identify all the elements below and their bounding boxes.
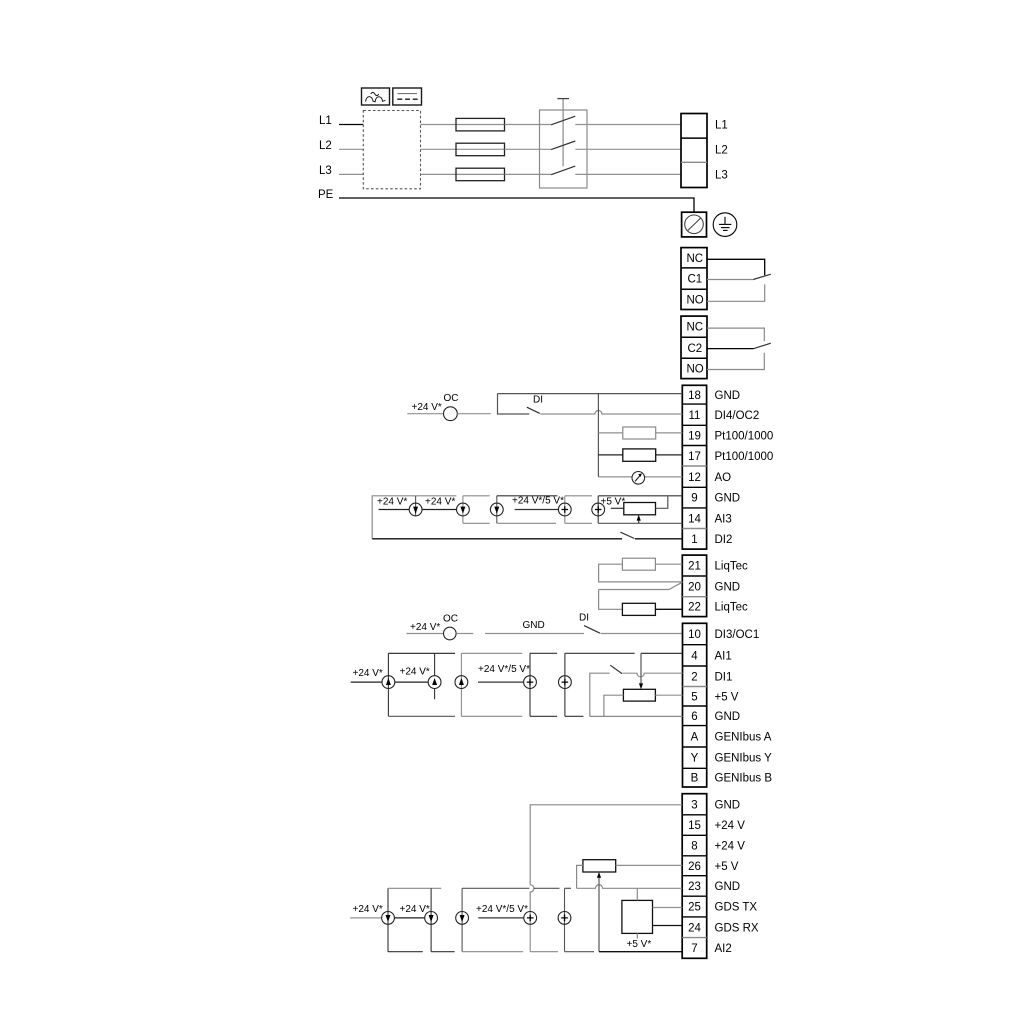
svg-text:GND: GND [715,493,741,505]
svg-text:+24 V*: +24 V* [353,668,383,679]
svg-text:+24 V*: +24 V* [410,622,440,633]
svg-text:21: 21 [688,561,701,573]
svg-text:20: 20 [688,581,701,593]
svg-text:NO: NO [687,295,704,307]
svg-text:GND: GND [715,581,741,593]
svg-text:C1: C1 [688,274,703,286]
svg-text:GDS RX: GDS RX [715,922,759,934]
svg-text:26: 26 [688,861,701,873]
svg-text:+24 V: +24 V [715,841,746,853]
svg-text:+24 V*: +24 V* [377,497,407,508]
svg-text:AI1: AI1 [715,650,732,662]
svg-text:+24 V*: +24 V* [353,904,383,915]
svg-text:22: 22 [688,602,701,614]
svg-text:+24 V*: +24 V* [412,402,442,413]
svg-text:GENIbus Y: GENIbus Y [715,753,773,765]
svg-text:1: 1 [691,534,697,546]
svg-text:+24 V*: +24 V* [425,497,455,508]
svg-text:B: B [691,773,699,785]
svg-text:L1: L1 [715,120,728,132]
svg-text:+5 V*: +5 V* [627,939,652,950]
svg-text:5: 5 [691,691,697,703]
svg-text:+24 V*: +24 V* [400,904,430,915]
svg-text:25: 25 [688,902,701,914]
svg-text:L2: L2 [715,144,728,156]
svg-text:L3: L3 [715,169,728,181]
svg-text:NO: NO [687,364,704,376]
svg-text:+24 V*: +24 V* [400,667,430,678]
svg-text:L2: L2 [319,140,332,152]
svg-text:GDS TX: GDS TX [715,902,758,914]
svg-text:10: 10 [688,629,701,641]
svg-text:Y: Y [691,753,699,765]
svg-text:GENIbus B: GENIbus B [715,773,773,785]
svg-text:AO: AO [715,472,732,484]
svg-text:GENIbus A: GENIbus A [715,731,772,743]
svg-text:LiqTec: LiqTec [715,602,748,614]
svg-text:15: 15 [688,820,701,832]
svg-text:+24 V*/5 V*: +24 V*/5 V* [476,904,528,915]
svg-text:18: 18 [688,390,701,402]
svg-text:+24 V*/5 V*: +24 V*/5 V* [512,496,564,507]
svg-text:14: 14 [688,513,701,525]
svg-text:OC: OC [444,393,459,404]
svg-text:PE: PE [318,189,334,201]
svg-text:DI2: DI2 [715,534,733,546]
svg-text:GND: GND [715,799,741,811]
svg-text:9: 9 [691,493,697,505]
svg-text:+5 V*: +5 V* [601,496,626,507]
svg-text:+24 V: +24 V [715,820,746,832]
svg-text:OC: OC [443,613,458,624]
svg-text:+24 V*/5 V*: +24 V*/5 V* [478,664,530,675]
svg-text:DI: DI [579,613,589,624]
svg-text:+5 V: +5 V [715,691,739,703]
svg-text:24: 24 [688,922,701,934]
svg-text:DI3/OC1: DI3/OC1 [715,629,760,641]
svg-text:7: 7 [691,943,697,955]
svg-text:2: 2 [691,671,697,683]
svg-text:C2: C2 [688,343,703,355]
svg-text:A: A [691,731,699,743]
svg-text:NC: NC [687,322,704,334]
svg-text:3: 3 [691,799,697,811]
svg-text:+5 V: +5 V [715,861,739,873]
svg-text:23: 23 [688,881,701,893]
svg-text:4: 4 [691,650,698,662]
svg-text:AI2: AI2 [715,943,732,955]
svg-text:GND: GND [715,390,741,402]
svg-text:17: 17 [688,451,701,463]
svg-text:Pt100/1000: Pt100/1000 [715,431,774,443]
svg-text:8: 8 [691,841,697,853]
svg-text:GND: GND [523,620,545,631]
svg-text:DI: DI [533,394,543,405]
svg-text:19: 19 [688,431,701,443]
svg-text:AI3: AI3 [715,513,732,525]
svg-text:12: 12 [688,472,701,484]
svg-text:LiqTec: LiqTec [715,561,748,573]
svg-text:NC: NC [687,253,704,265]
svg-text:DI4/OC2: DI4/OC2 [715,410,760,422]
svg-text:GND: GND [715,711,741,723]
svg-text:GND: GND [715,881,741,893]
svg-text:11: 11 [689,410,701,422]
svg-text:Pt100/1000: Pt100/1000 [715,451,774,463]
svg-text:DI1: DI1 [715,671,733,683]
svg-text:L1: L1 [319,115,332,127]
svg-text:L3: L3 [319,165,332,177]
svg-text:6: 6 [691,711,697,723]
